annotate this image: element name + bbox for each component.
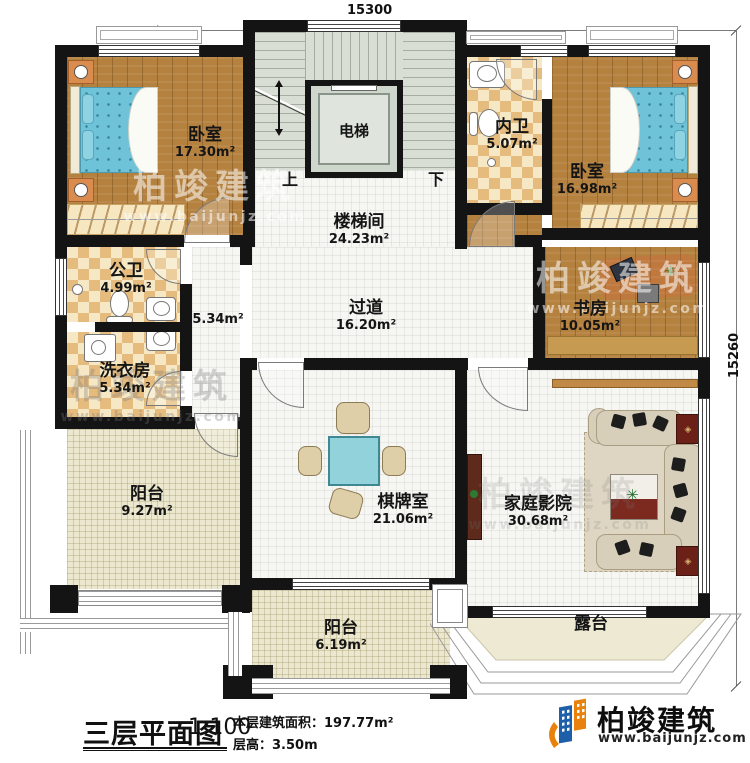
wall bbox=[542, 228, 710, 240]
wall bbox=[200, 45, 243, 57]
sink-basin bbox=[153, 301, 170, 316]
bed-blanket bbox=[128, 87, 158, 173]
room-label-corridor: 过道16.20m² bbox=[336, 298, 396, 334]
wall bbox=[55, 235, 184, 247]
room-label-terrace: 露台 bbox=[574, 614, 608, 634]
wall bbox=[180, 284, 192, 334]
room-label-balcony-bottom: 阳台6.19m² bbox=[315, 618, 366, 654]
wall bbox=[240, 358, 257, 370]
wall bbox=[515, 235, 542, 247]
window bbox=[55, 258, 67, 316]
pillow bbox=[82, 94, 94, 124]
room-label-bedroom-right: 卧室16.98m² bbox=[557, 162, 617, 198]
floor-hallway-west bbox=[192, 247, 240, 417]
window bbox=[588, 45, 676, 57]
cushion bbox=[639, 542, 654, 557]
wall bbox=[455, 370, 467, 606]
lamp-icon bbox=[74, 183, 88, 197]
card-table bbox=[328, 436, 380, 486]
room-label-laundry: 洗衣房5.34m² bbox=[99, 361, 150, 397]
plant-icon: ✳ bbox=[664, 262, 677, 280]
window bbox=[520, 45, 568, 57]
window bbox=[98, 45, 200, 57]
chair bbox=[336, 402, 370, 434]
brand-logo-icon bbox=[544, 694, 594, 750]
window-sill bbox=[96, 26, 202, 44]
pillow bbox=[82, 130, 94, 160]
stairs-down-label: 下 bbox=[428, 166, 444, 190]
toilet-tank bbox=[469, 112, 478, 136]
room-label-hallway-west: 5.34m² bbox=[192, 312, 243, 328]
wall bbox=[533, 247, 545, 358]
wall bbox=[528, 358, 710, 370]
floor-plan: 15300 15260 bbox=[0, 0, 750, 763]
cushion bbox=[632, 412, 647, 427]
sink-basin bbox=[153, 331, 170, 346]
room-label-elevator: 电梯 bbox=[339, 122, 369, 140]
wardrobe bbox=[67, 204, 185, 235]
wall bbox=[95, 322, 180, 332]
side-cabinet: ◈ bbox=[676, 414, 700, 444]
plant-icon: ✳ bbox=[626, 486, 639, 504]
sink-basin bbox=[477, 65, 497, 82]
washer-door bbox=[91, 340, 106, 355]
pillow bbox=[674, 94, 686, 124]
window bbox=[698, 262, 710, 358]
room-label-home-theater: 家庭影院30.68m² bbox=[504, 494, 572, 530]
title-underline bbox=[83, 747, 227, 751]
wall bbox=[252, 578, 292, 590]
cushion bbox=[671, 457, 686, 472]
wall bbox=[243, 20, 255, 247]
desk-cabinet bbox=[547, 336, 698, 355]
wall bbox=[55, 417, 195, 429]
arrow-head-down bbox=[275, 129, 283, 136]
wall bbox=[180, 334, 192, 371]
balcony-railing bbox=[78, 590, 222, 606]
wall bbox=[240, 358, 252, 612]
wall bbox=[180, 406, 192, 417]
side-cabinet: ◈ bbox=[676, 546, 700, 576]
chair bbox=[382, 446, 406, 476]
room-label-balcony-left: 阳台9.27m² bbox=[121, 484, 172, 520]
stair-flight-top bbox=[305, 32, 403, 80]
brand-website: www.baijunjz.com bbox=[598, 731, 747, 746]
room-label-study: 书房10.05m² bbox=[560, 299, 620, 335]
balcony-railing bbox=[228, 612, 242, 676]
arrow-head-up bbox=[275, 80, 283, 87]
lamp-icon bbox=[678, 65, 692, 79]
room-label-public-bath: 公卫4.99m² bbox=[100, 261, 151, 297]
floor-height-line: 层高：3.50m bbox=[233, 734, 318, 753]
dimension-top-value: 15300 bbox=[347, 3, 392, 18]
room-label-inner-bath: 内卫5.07m² bbox=[486, 117, 537, 153]
lamp-icon bbox=[74, 65, 88, 79]
chair bbox=[298, 446, 322, 476]
wall bbox=[568, 45, 588, 57]
pillar-frame bbox=[432, 584, 468, 628]
bed-headboard bbox=[688, 86, 698, 174]
elevator-door bbox=[331, 85, 377, 91]
stairs-up-label: 上 bbox=[282, 166, 298, 190]
stair-direction-arrow bbox=[278, 86, 280, 130]
floor-area-line: 本层建筑面积：197.77m² bbox=[233, 712, 393, 731]
sliding-window bbox=[492, 606, 647, 618]
room-label-game-room: 棋牌室21.06m² bbox=[373, 492, 433, 528]
room-label-bedroom-left: 卧室17.30m² bbox=[175, 125, 235, 161]
faucet-icon bbox=[72, 284, 83, 295]
window-sill bbox=[466, 31, 566, 44]
balcony-railing bbox=[252, 678, 450, 694]
window-sill bbox=[586, 26, 678, 44]
lamp-icon bbox=[678, 183, 692, 197]
long-cabinet bbox=[552, 379, 698, 388]
room-label-stairwell: 楼梯间24.23m² bbox=[329, 212, 389, 248]
wall-corner bbox=[222, 585, 250, 613]
wall bbox=[542, 99, 552, 203]
window bbox=[698, 398, 710, 594]
window bbox=[307, 20, 401, 32]
wall bbox=[304, 358, 468, 370]
plant-icon bbox=[470, 490, 478, 498]
dimension-right-value: 15260 bbox=[727, 333, 742, 378]
balcony-railing bbox=[20, 618, 238, 632]
wall bbox=[240, 247, 252, 265]
wall-corner bbox=[50, 585, 78, 613]
wall bbox=[230, 235, 243, 247]
stair-flight-right bbox=[403, 32, 455, 168]
sliding-window bbox=[292, 578, 430, 590]
pillow bbox=[674, 130, 686, 160]
floor-drain-icon bbox=[487, 158, 496, 167]
bed-headboard bbox=[70, 86, 80, 174]
monitor-icon bbox=[637, 284, 659, 303]
